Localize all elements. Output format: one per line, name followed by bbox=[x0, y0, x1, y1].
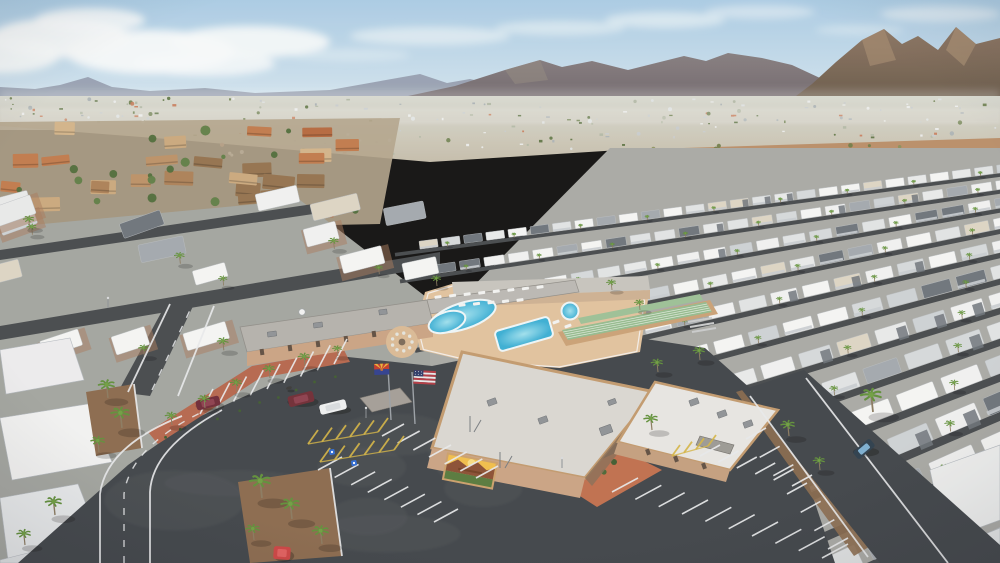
aerial-photo-canvas bbox=[0, 0, 1000, 563]
aerial-photo-of-mobile-home-park bbox=[0, 0, 1000, 563]
photo-tone-overlay bbox=[0, 0, 1000, 563]
